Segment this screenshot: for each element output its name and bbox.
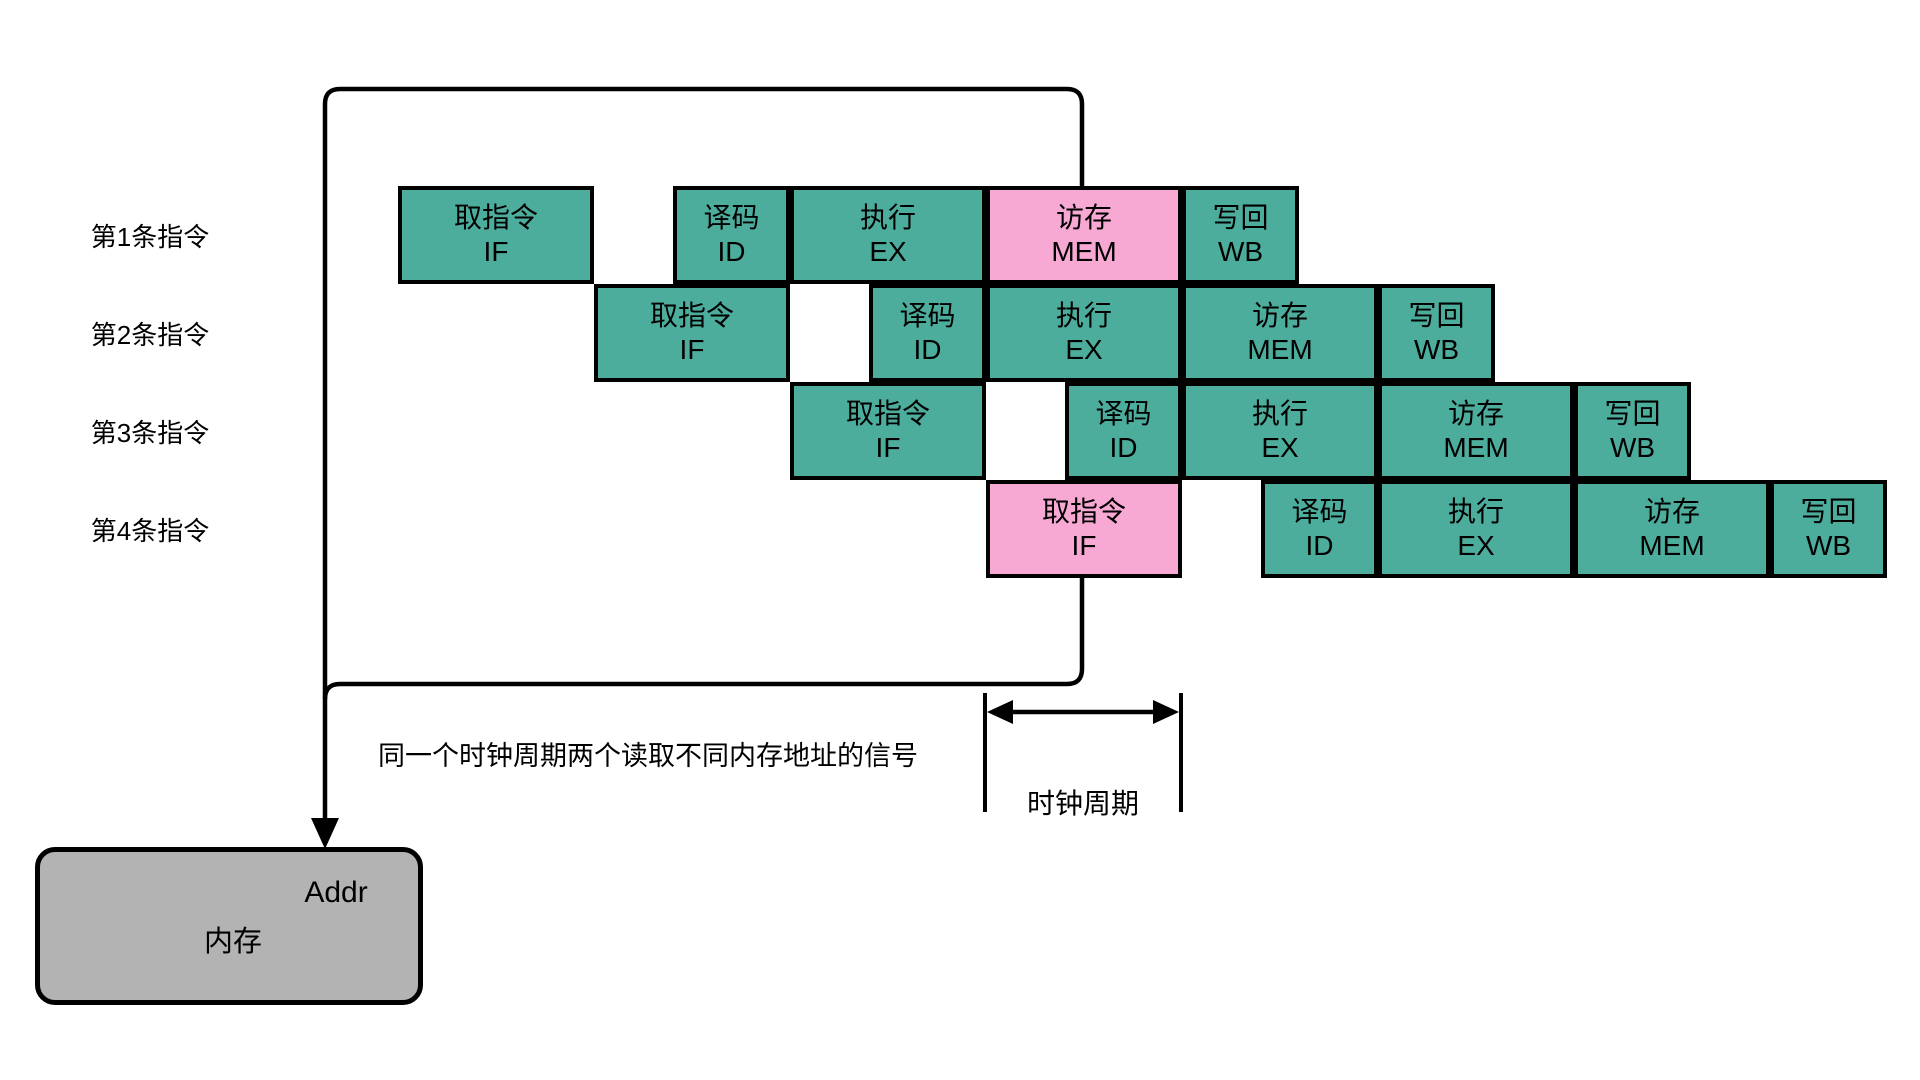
stage-name-abbr: EX bbox=[1261, 431, 1298, 465]
pipeline-diagram: 第1条指令取指令IF译码ID执行EX访存MEM写回WB第2条指令取指令IF译码I… bbox=[0, 0, 1920, 1080]
pipeline-stage-row1-ex: 执行EX bbox=[790, 186, 986, 284]
memory-label: 内存 bbox=[153, 918, 313, 960]
stage-name-abbr: IF bbox=[876, 431, 901, 465]
stage-name-abbr: ID bbox=[1110, 431, 1138, 465]
stage-name-zh: 译码 bbox=[1291, 495, 1347, 529]
stage-name-abbr: MEM bbox=[1443, 431, 1508, 465]
stage-name-zh: 执行 bbox=[860, 201, 916, 235]
stage-name-zh: 执行 bbox=[1056, 299, 1112, 333]
memory-addr-label: Addr bbox=[256, 876, 416, 910]
stage-name-zh: 访存 bbox=[1448, 397, 1504, 431]
instruction-row-label-4: 第4条指令 bbox=[40, 480, 260, 578]
stage-name-zh: 访存 bbox=[1252, 299, 1308, 333]
stage-name-abbr: ID bbox=[718, 235, 746, 269]
stage-name-abbr: EX bbox=[1457, 529, 1494, 563]
stage-name-abbr: ID bbox=[914, 333, 942, 367]
instruction-row-label-3: 第3条指令 bbox=[40, 382, 260, 480]
stage-name-zh: 执行 bbox=[1252, 397, 1308, 431]
pipeline-stage-row4-wb: 写回WB bbox=[1770, 480, 1887, 578]
stage-name-abbr: IF bbox=[1072, 529, 1097, 563]
stage-name-abbr: WB bbox=[1414, 333, 1459, 367]
stage-name-abbr: MEM bbox=[1639, 529, 1704, 563]
pipeline-stage-row4-mem: 访存MEM bbox=[1574, 480, 1770, 578]
pipeline-stage-row2-mem: 访存MEM bbox=[1182, 284, 1378, 382]
clock-arrowhead-left-icon bbox=[987, 700, 1013, 724]
pipeline-stage-row3-id: 译码ID bbox=[1065, 382, 1182, 480]
stage-name-zh: 取指令 bbox=[650, 299, 734, 333]
pipeline-stage-row2-if: 取指令IF bbox=[594, 284, 790, 382]
stage-name-zh: 译码 bbox=[899, 299, 955, 333]
pipeline-stage-row1-if: 取指令IF bbox=[398, 186, 594, 284]
clock-cycle-label: 时钟周期 bbox=[983, 782, 1183, 822]
pipeline-stage-row4-id: 译码ID bbox=[1261, 480, 1378, 578]
stage-name-abbr: EX bbox=[1065, 333, 1102, 367]
memory-box: Addr 内存 bbox=[35, 847, 423, 1005]
pipeline-stage-row1-wb: 写回WB bbox=[1182, 186, 1299, 284]
pipeline-stage-row3-wb: 写回WB bbox=[1574, 382, 1691, 480]
stage-name-zh: 执行 bbox=[1448, 495, 1504, 529]
stage-name-abbr: EX bbox=[869, 235, 906, 269]
stage-name-zh: 取指令 bbox=[846, 397, 930, 431]
pipeline-stage-row4-ex: 执行EX bbox=[1378, 480, 1574, 578]
pipeline-stage-row1-mem: 访存MEM bbox=[986, 186, 1182, 284]
stage-name-abbr: WB bbox=[1806, 529, 1851, 563]
pipeline-stage-row2-id: 译码ID bbox=[869, 284, 986, 382]
pipeline-stage-row2-ex: 执行EX bbox=[986, 284, 1182, 382]
pipeline-stage-row3-if: 取指令IF bbox=[790, 382, 986, 480]
instruction-row-label-1: 第1条指令 bbox=[40, 186, 260, 284]
stage-name-zh: 写回 bbox=[1212, 201, 1268, 235]
stage-name-abbr: IF bbox=[680, 333, 705, 367]
pipeline-stage-row2-wb: 写回WB bbox=[1378, 284, 1495, 382]
stage-name-abbr: ID bbox=[1306, 529, 1334, 563]
stage-name-abbr: MEM bbox=[1247, 333, 1312, 367]
stage-name-abbr: WB bbox=[1218, 235, 1263, 269]
stage-name-zh: 访存 bbox=[1644, 495, 1700, 529]
pipeline-stage-row3-ex: 执行EX bbox=[1182, 382, 1378, 480]
same-cycle-annotation: 同一个时钟周期两个读取不同内存地址的信号 bbox=[378, 734, 918, 773]
clock-arrowhead-right-icon bbox=[1153, 700, 1179, 724]
pipeline-stage-row1-id: 译码ID bbox=[673, 186, 790, 284]
stage-name-zh: 取指令 bbox=[1042, 495, 1126, 529]
stage-name-abbr: WB bbox=[1610, 431, 1655, 465]
pipeline-stage-row3-mem: 访存MEM bbox=[1378, 382, 1574, 480]
stage-name-zh: 取指令 bbox=[454, 201, 538, 235]
stage-name-abbr: MEM bbox=[1051, 235, 1116, 269]
stage-name-zh: 写回 bbox=[1800, 495, 1856, 529]
stage-name-zh: 译码 bbox=[703, 201, 759, 235]
stage-name-zh: 写回 bbox=[1408, 299, 1464, 333]
stage-name-zh: 译码 bbox=[1095, 397, 1151, 431]
pipeline-stage-row4-if: 取指令IF bbox=[986, 480, 1182, 578]
stage-name-zh: 写回 bbox=[1604, 397, 1660, 431]
memory-arrowhead-icon bbox=[311, 818, 339, 849]
stage-name-abbr: IF bbox=[484, 235, 509, 269]
if-stage-to-memory-line bbox=[325, 578, 1082, 699]
stage-name-zh: 访存 bbox=[1056, 201, 1112, 235]
instruction-row-label-2: 第2条指令 bbox=[40, 284, 260, 382]
